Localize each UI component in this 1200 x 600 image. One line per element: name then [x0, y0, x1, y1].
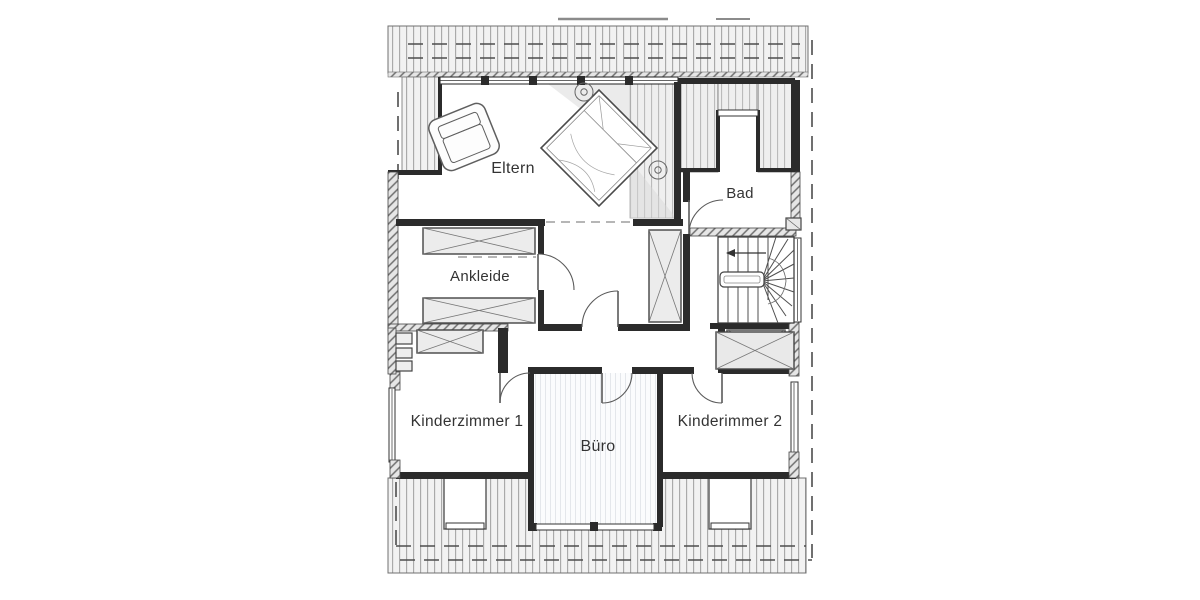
room-label-ankleide: Ankleide: [450, 268, 510, 285]
stair-north-wall: [690, 228, 796, 236]
wall-k1-buero: [528, 367, 534, 527]
dormer-kinderimmer2: [709, 478, 751, 529]
room-label-buero: Büro: [581, 438, 616, 455]
roof-band-top: [388, 26, 808, 73]
window-east: [791, 382, 798, 454]
room-label-kinderzimmer1: Kinderzimmer 1: [411, 413, 524, 430]
wardrobe-kinderzimmer1: [417, 330, 483, 353]
dormer-bad-window: [718, 110, 758, 116]
dormer-k2-window: [711, 523, 749, 529]
room-label-eltern: Eltern: [491, 160, 535, 177]
roof-band-bad-right: [758, 80, 795, 172]
wardrobe-hall: [649, 230, 681, 322]
k2-south-wall: [660, 472, 796, 479]
stairs-handrail: [720, 272, 764, 287]
dormer-kinderzimmer1: [444, 478, 486, 529]
door-kinderimmer2: [692, 373, 722, 403]
room-label-kinderimmer2: Kinderimmer 2: [678, 413, 783, 430]
wall-buero-k2: [657, 367, 663, 527]
k1-south-wall: [396, 472, 533, 479]
roof-band-bad-left: [681, 80, 718, 172]
eltern-south-wall: [396, 219, 545, 226]
closet-under-stairs: [716, 332, 794, 369]
door-ankleide: [538, 254, 574, 290]
knee-wall-line: [388, 72, 808, 77]
bad-north-wall: [678, 78, 795, 84]
east-wall-upper: [791, 80, 800, 172]
door-kinderzimmer1: [500, 373, 530, 403]
staircase: [718, 237, 794, 323]
dormer-k1-window: [446, 523, 484, 529]
floor-plan-page: Eltern Bad Ankleide Kinderzimmer 1 Büro …: [0, 0, 1200, 600]
roof-band-bad-top: [718, 80, 758, 112]
wardrobe-ankleide-top: [423, 228, 535, 254]
west-wall-hatched-upper: [388, 172, 398, 328]
shaft-blocks: [388, 328, 412, 374]
room-label-bad: Bad: [726, 185, 754, 202]
floor-plan-canvas: Eltern Bad Ankleide Kinderzimmer 1 Büro …: [0, 0, 1200, 600]
eltern-east-wall: [674, 82, 681, 226]
wardrobe-ankleide-bottom: [423, 298, 535, 323]
door-hall: [582, 291, 618, 327]
